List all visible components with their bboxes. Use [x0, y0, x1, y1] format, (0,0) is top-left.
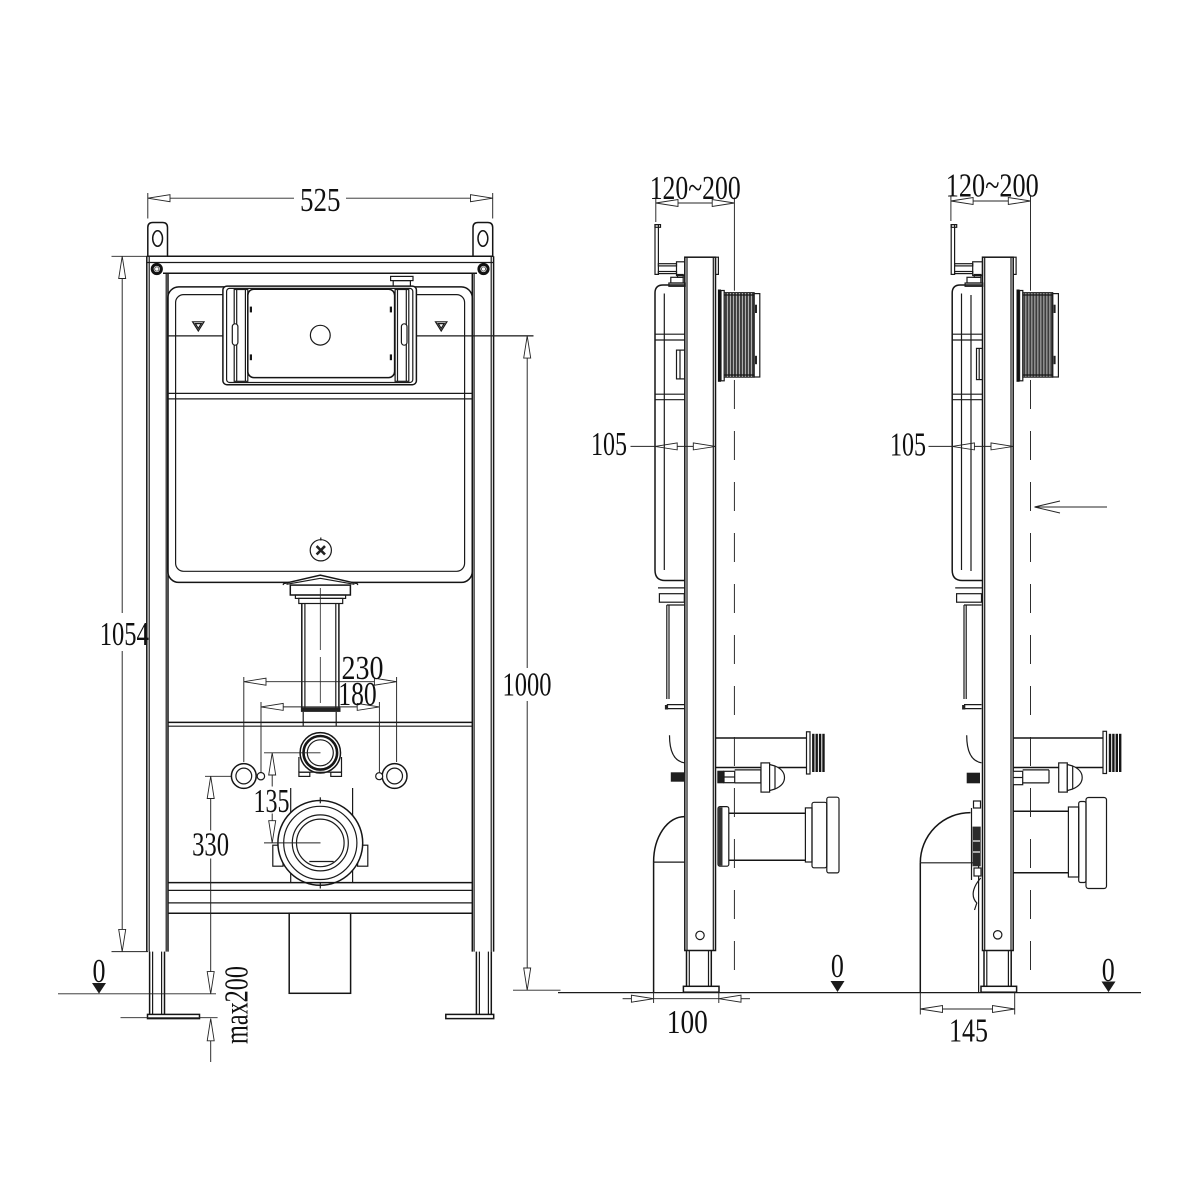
svg-text:105: 105	[591, 426, 627, 463]
svg-text:max200: max200	[219, 966, 256, 1044]
svg-text:145: 145	[949, 1013, 988, 1050]
svg-text:180: 180	[338, 676, 377, 713]
svg-text:525: 525	[300, 182, 341, 219]
svg-text:105: 105	[890, 427, 926, 464]
svg-text:330: 330	[192, 827, 229, 864]
svg-text:120~200: 120~200	[650, 170, 741, 207]
svg-text:0: 0	[831, 948, 844, 985]
svg-text:135: 135	[254, 783, 290, 820]
svg-text:100: 100	[667, 1004, 708, 1041]
svg-text:1000: 1000	[503, 667, 552, 704]
svg-text:1054: 1054	[100, 616, 149, 653]
svg-text:120~200: 120~200	[946, 167, 1039, 204]
